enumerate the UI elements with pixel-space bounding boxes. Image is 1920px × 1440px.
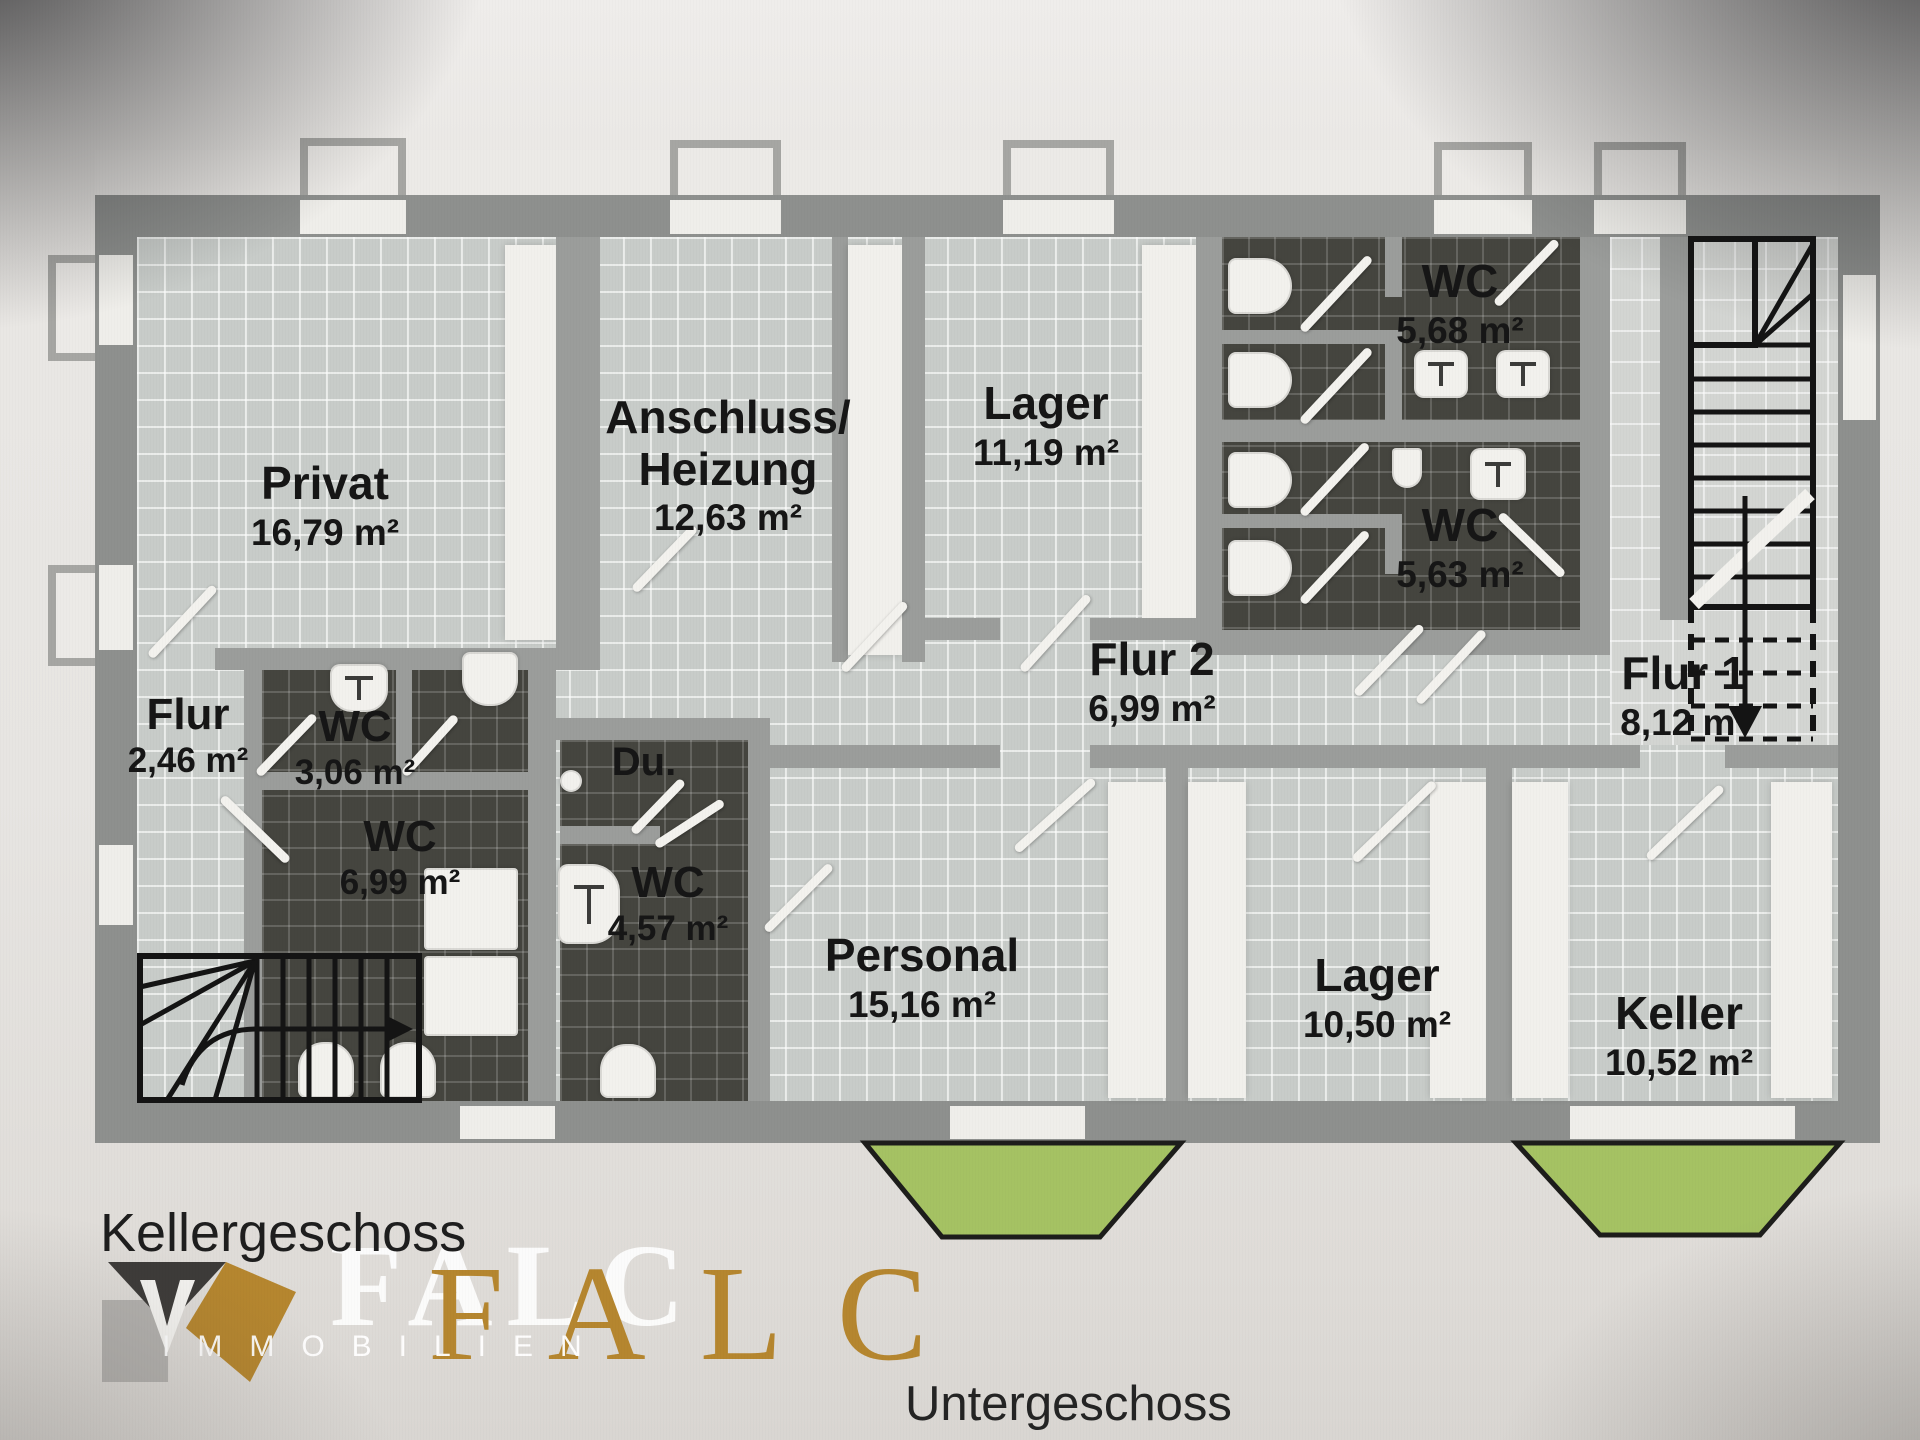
room-label-anschluss: Anschluss/ Heizung 12,63 m² [605,392,850,538]
light-shaft [1142,245,1196,630]
window [460,1106,555,1139]
toilet-icon [600,1044,656,1098]
room-label-wc306: WC 3,06 m² [295,702,416,792]
falc-logo-text: FALC [428,1236,982,1392]
room-label-wc699: WC 6,99 m² [340,812,461,902]
wall [1166,768,1188,1101]
room-label-lager-unten: Lager 10,50 m² [1303,950,1451,1045]
staircase-bottom-left [137,953,422,1103]
light-shaft [1430,782,1486,1098]
room-label-flur: Flur 2,46 m² [128,690,249,780]
wall [1090,745,1640,768]
window [950,1106,1085,1139]
toilet-icon [1228,352,1292,408]
light-shaft [1108,782,1166,1098]
window [1570,1106,1795,1139]
light-shaft [1771,782,1832,1098]
caption-untergeschoss: Untergeschoss [905,1376,1232,1432]
window [1434,200,1532,234]
window-well [48,255,97,361]
wall [528,648,556,1101]
wall [560,826,660,844]
room-label-du: Du. [612,740,676,785]
wall [748,718,770,1101]
light-shaft [505,245,556,640]
wall [548,718,770,740]
window [300,200,406,234]
toilet-icon [462,652,518,706]
room-label-wc457: WC 4,57 m² [608,858,729,948]
wall [902,237,925,662]
window [99,565,133,650]
window [1594,200,1686,234]
room-label-personal: Personal 15,16 m² [825,930,1019,1025]
shower-icon [560,770,582,792]
light-shaft [848,245,902,655]
room-label-wc563: WC 5,63 m² [1396,500,1524,595]
sink-icon [1414,350,1468,398]
wall [1486,768,1512,1101]
wall [748,745,1000,768]
wall [1725,745,1838,768]
wall [556,237,600,670]
urinal-icon [1392,448,1422,488]
wall [1660,237,1690,620]
window-well [48,565,97,666]
wall [1222,514,1390,528]
wall [1222,330,1390,344]
floor-title: Kellergeschoss [100,1202,466,1264]
sink-icon [1496,350,1550,398]
room-label-lager-top: Lager 11,19 m² [973,378,1119,473]
floorplan-photo: Privat 16,79 m² Anschluss/ Heizung 12,63… [0,0,1920,1440]
window [1843,275,1876,420]
light-shaft [1512,782,1568,1098]
wall [925,618,1000,640]
room-label-privat: Privat 16,79 m² [251,458,399,553]
window [99,845,133,925]
wall [1580,237,1610,655]
wall [1196,237,1222,655]
window [99,255,133,345]
room-label-flur2: Flur 2 6,99 m² [1088,634,1216,729]
sink-icon [1470,448,1526,500]
washer-icon [424,956,518,1036]
staircase-top-right [1688,236,1816,746]
toilet-icon [1228,540,1292,596]
window [1003,200,1114,234]
window [670,200,781,234]
wall [1222,420,1610,442]
room-label-wc568: WC 5,68 m² [1396,256,1524,351]
falc-logo-subtitle: IMMOBILIEN [162,1330,609,1364]
room-label-keller: Keller 10,52 m² [1605,988,1753,1083]
light-shaft [1188,782,1246,1098]
toilet-icon [1228,452,1292,508]
toilet-icon [1228,258,1292,314]
falc-logo-icon [100,1262,315,1382]
